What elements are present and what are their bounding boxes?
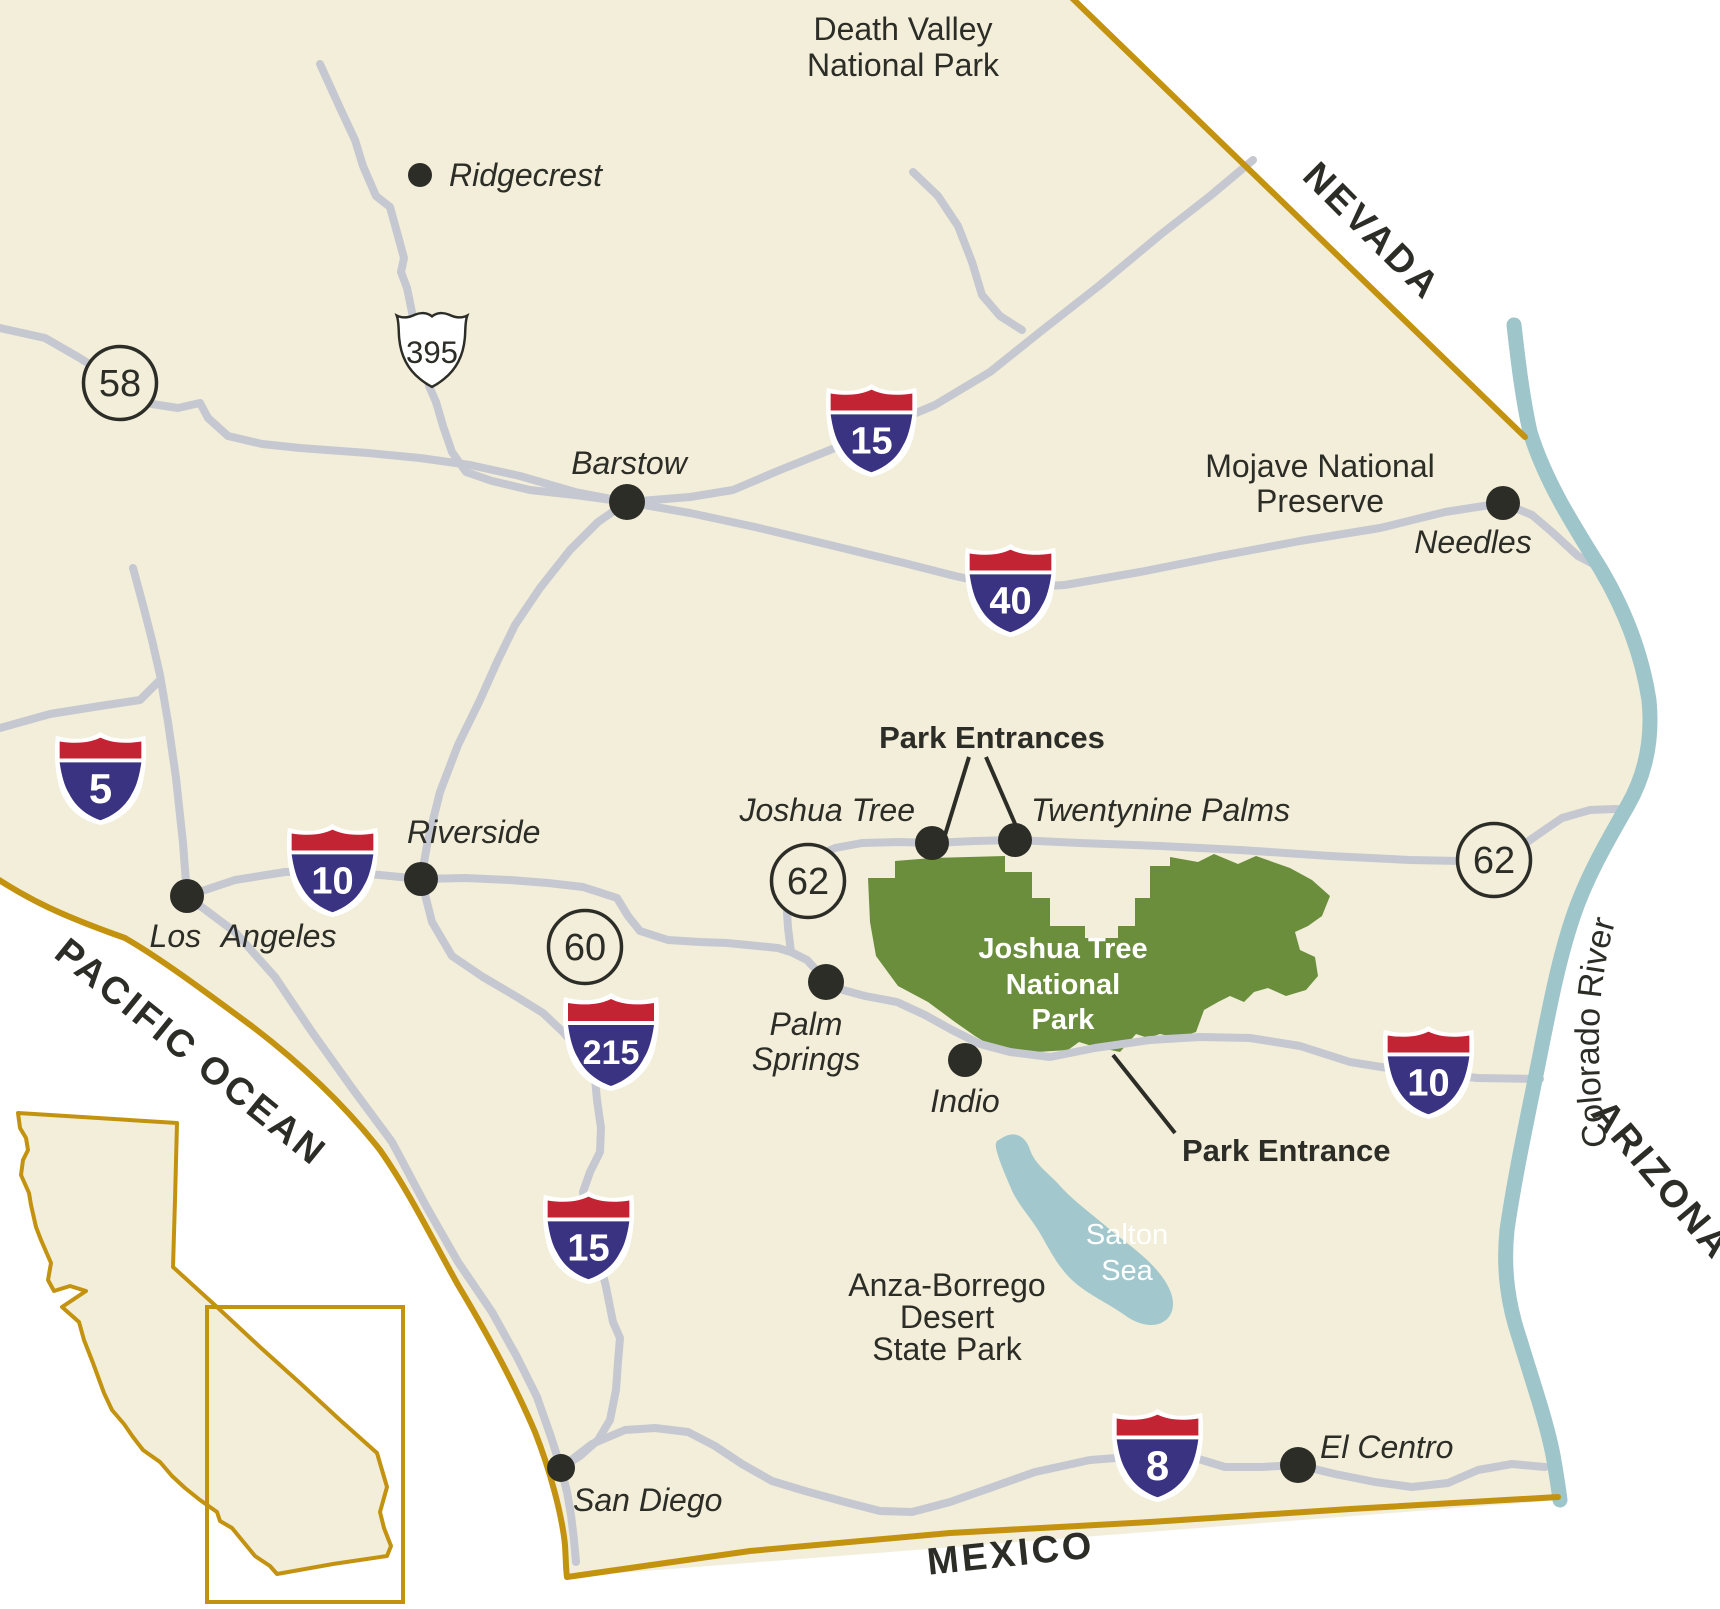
label-joshua-tree-town: Joshua Tree	[739, 792, 916, 828]
label-anza-3: State Park	[872, 1331, 1022, 1367]
city-dot-palm-springs	[808, 964, 844, 1000]
interstate-15-number-south: 15	[567, 1227, 609, 1269]
state-62-shield-west: 62	[772, 845, 845, 918]
state-60-number: 60	[564, 927, 606, 969]
city-dot-twentynine-palms	[998, 823, 1032, 857]
label-san-diego: San Diego	[573, 1482, 722, 1518]
city-dot-barstow	[609, 484, 645, 520]
label-salton-sea-2: Sea	[1101, 1255, 1153, 1287]
interstate-40-number: 40	[989, 580, 1031, 622]
city-dot-ridgecrest	[408, 163, 432, 187]
city-dot-indio	[948, 1043, 982, 1077]
label-barstow: Barstow	[571, 445, 688, 481]
label-jtnp-2: National	[1006, 969, 1120, 1001]
label-park-entrances: Park Entrances	[879, 720, 1105, 755]
interstate-10-number-east: 10	[1407, 1062, 1449, 1104]
city-dot-joshua-tree	[915, 826, 949, 860]
label-mojave-2: Preserve	[1256, 483, 1384, 519]
label-mojave-1: Mojave National	[1205, 448, 1434, 484]
map-canvas: 5 15 40 10 215 15 10 8 395 58 60 62	[0, 0, 1720, 1609]
label-twentynine-palms: Twentynine Palms	[1031, 792, 1290, 828]
state-62-number-west: 62	[787, 861, 829, 903]
interstate-15-number: 15	[850, 420, 892, 462]
label-el-centro: El Centro	[1320, 1429, 1453, 1465]
interstate-10-number-west: 10	[311, 860, 353, 902]
california-inset-outline	[18, 1113, 391, 1574]
label-death-valley-1: Death Valley	[813, 11, 992, 47]
state-58-number: 58	[99, 363, 141, 405]
label-anza-1: Anza-Borrego	[848, 1267, 1045, 1303]
label-park-entrance: Park Entrance	[1182, 1133, 1391, 1168]
label-death-valley-2: National Park	[807, 47, 1000, 83]
label-anza-2: Desert	[900, 1299, 994, 1335]
city-dot-los-angeles	[170, 879, 204, 913]
state-62-shield-east: 62	[1458, 824, 1531, 897]
label-los-angeles: Los Angeles	[150, 918, 337, 954]
city-dot-san-diego	[547, 1454, 575, 1482]
label-riverside: Riverside	[407, 814, 540, 850]
city-dot-riverside	[404, 862, 438, 896]
label-jtnp-3: Park	[1032, 1004, 1096, 1036]
state-60-shield: 60	[549, 911, 622, 984]
label-needles: Needles	[1414, 524, 1531, 560]
california-inset-map	[18, 1113, 403, 1602]
state-58-shield: 58	[84, 347, 157, 420]
us-395-number: 395	[406, 335, 458, 370]
label-ridgecrest: Ridgecrest	[449, 157, 603, 193]
interstate-5-number: 5	[89, 765, 112, 812]
state-62-number-east: 62	[1473, 840, 1515, 882]
interstate-215-number: 215	[583, 1034, 640, 1072]
interstate-8-number: 8	[1146, 1442, 1169, 1489]
joshua-tree-region-map: 5 15 40 10 215 15 10 8 395 58 60 62	[0, 0, 1720, 1609]
label-palm-springs-2: Springs	[752, 1041, 861, 1077]
city-dot-el-centro	[1280, 1447, 1316, 1483]
label-indio: Indio	[930, 1083, 999, 1119]
city-dot-needles	[1486, 486, 1520, 520]
label-jtnp-1: Joshua Tree	[978, 933, 1147, 965]
label-palm-springs-1: Palm	[770, 1006, 843, 1042]
label-salton-sea-1: Salton	[1086, 1219, 1168, 1251]
